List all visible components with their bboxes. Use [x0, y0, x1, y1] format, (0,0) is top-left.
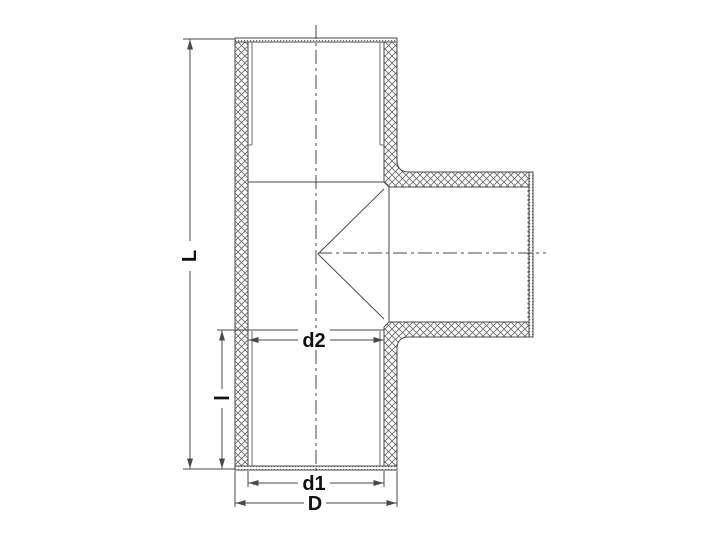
right-wall-lower-section: [384, 322, 529, 466]
right-wall-upper-section: [384, 42, 529, 187]
branch-cone-transition-lines: [318, 189, 384, 319]
dimension-l: l: [212, 331, 234, 469]
branch-outlet-body: [389, 172, 533, 337]
dimension-d2: d2: [249, 328, 384, 352]
dim-d2-label: d2: [302, 330, 325, 352]
centerlines: [316, 25, 546, 478]
pipe-tee-section-drawing: L l d2 d1 D: [0, 0, 720, 540]
left-wall-section: [235, 42, 248, 466]
dimension-d1: d1: [248, 471, 384, 495]
dim-l-label: l: [212, 395, 234, 401]
dim-d1-label: d1: [302, 473, 325, 495]
run-pipe-body: [217, 38, 529, 470]
branch-end-face: [529, 172, 533, 337]
dim-L-label: L: [179, 250, 201, 262]
dim-D-label: D: [308, 493, 322, 515]
technical-drawing-canvas: L l d2 d1 D: [0, 0, 720, 540]
